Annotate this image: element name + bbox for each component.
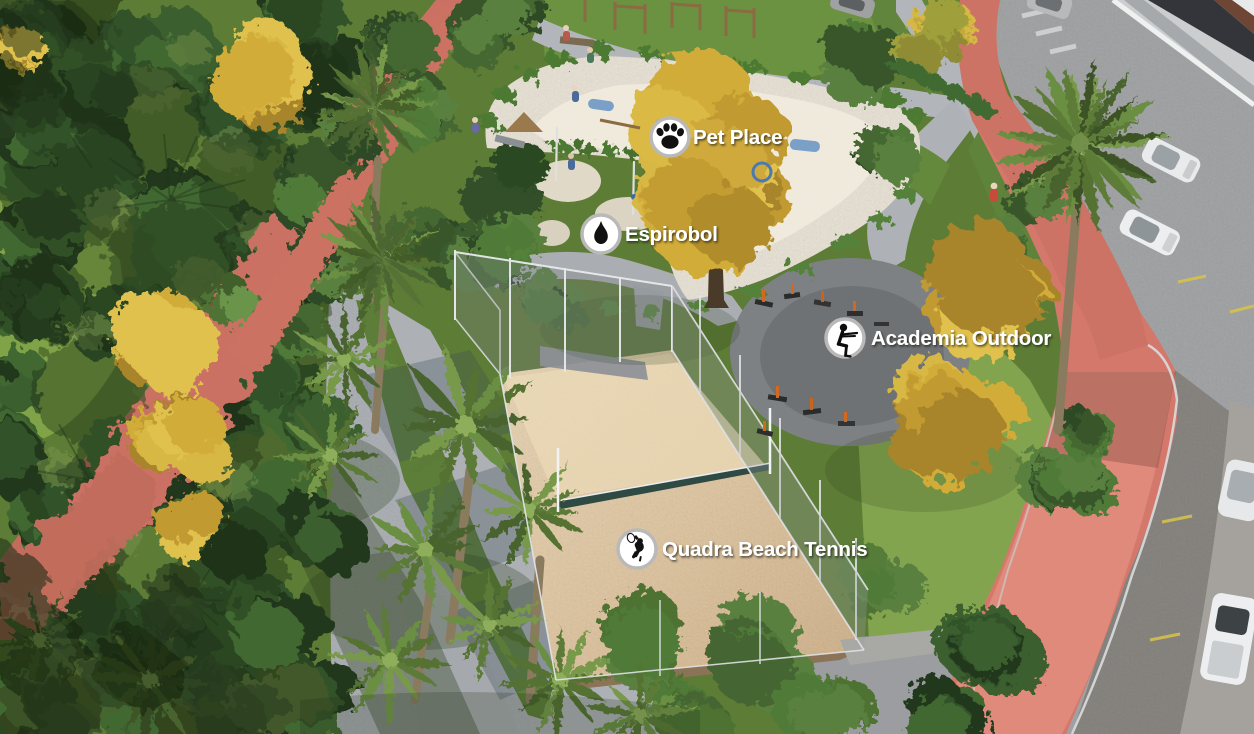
svg-text:Espirobol: Espirobol bbox=[625, 223, 718, 246]
svg-text:Pet Place: Pet Place bbox=[693, 126, 782, 149]
svg-text:Quadra Beach Tennis: Quadra Beach Tennis bbox=[662, 538, 867, 561]
svg-text:Academia Outdoor: Academia Outdoor bbox=[871, 327, 1051, 350]
